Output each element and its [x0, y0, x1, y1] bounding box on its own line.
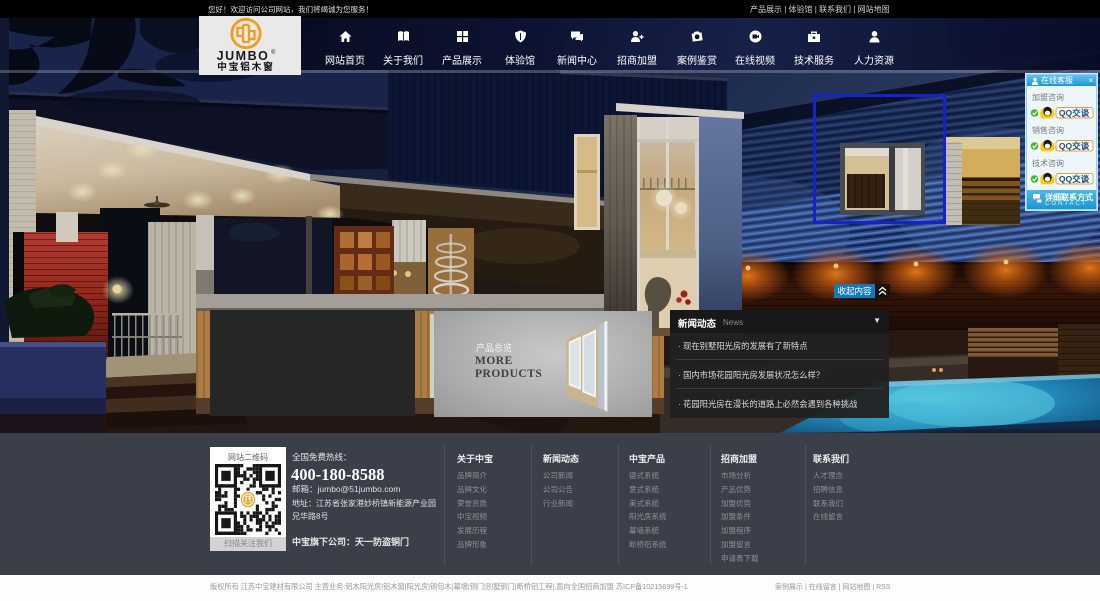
- svg-text:QQ交谈: QQ交谈: [1059, 141, 1090, 151]
- svg-text:QQ交谈: QQ交谈: [1059, 108, 1090, 118]
- svg-text:QQ交谈: QQ交谈: [1059, 174, 1090, 184]
